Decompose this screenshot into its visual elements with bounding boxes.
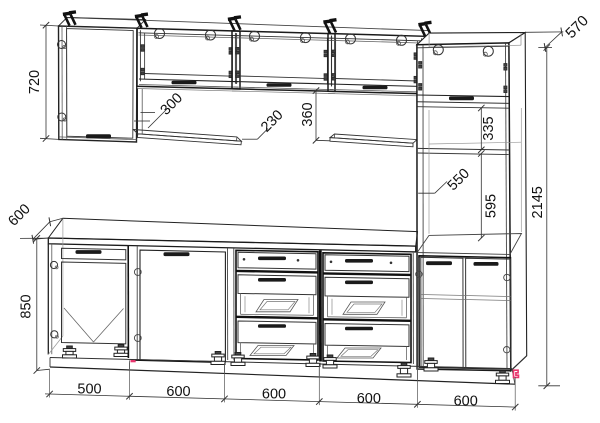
svg-text:850: 850 xyxy=(18,294,34,318)
svg-text:360: 360 xyxy=(300,102,316,126)
svg-text:2145: 2145 xyxy=(530,186,546,218)
svg-text:600: 600 xyxy=(166,384,190,400)
svg-text:335: 335 xyxy=(481,116,497,140)
svg-text:600: 600 xyxy=(454,393,478,409)
svg-text:600: 600 xyxy=(262,387,286,403)
svg-text:595: 595 xyxy=(483,194,499,218)
svg-text:720: 720 xyxy=(27,70,43,94)
svg-text:500: 500 xyxy=(77,381,101,397)
svg-text:600: 600 xyxy=(357,391,381,407)
